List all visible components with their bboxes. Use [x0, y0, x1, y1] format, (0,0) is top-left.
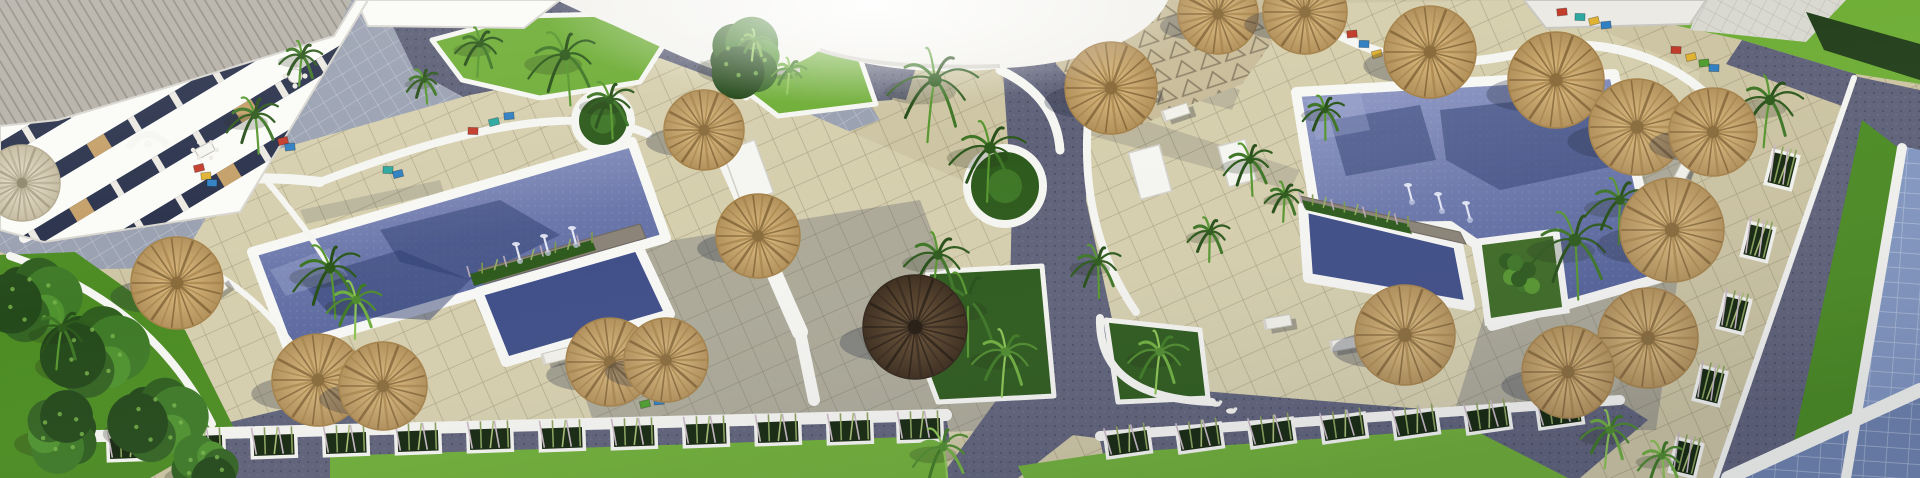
aerial-render-image: [0, 0, 1920, 478]
color-grade: [0, 0, 1920, 478]
lighting-fx-layer: [0, 0, 1920, 478]
resort-complex-scene: [0, 0, 1920, 478]
